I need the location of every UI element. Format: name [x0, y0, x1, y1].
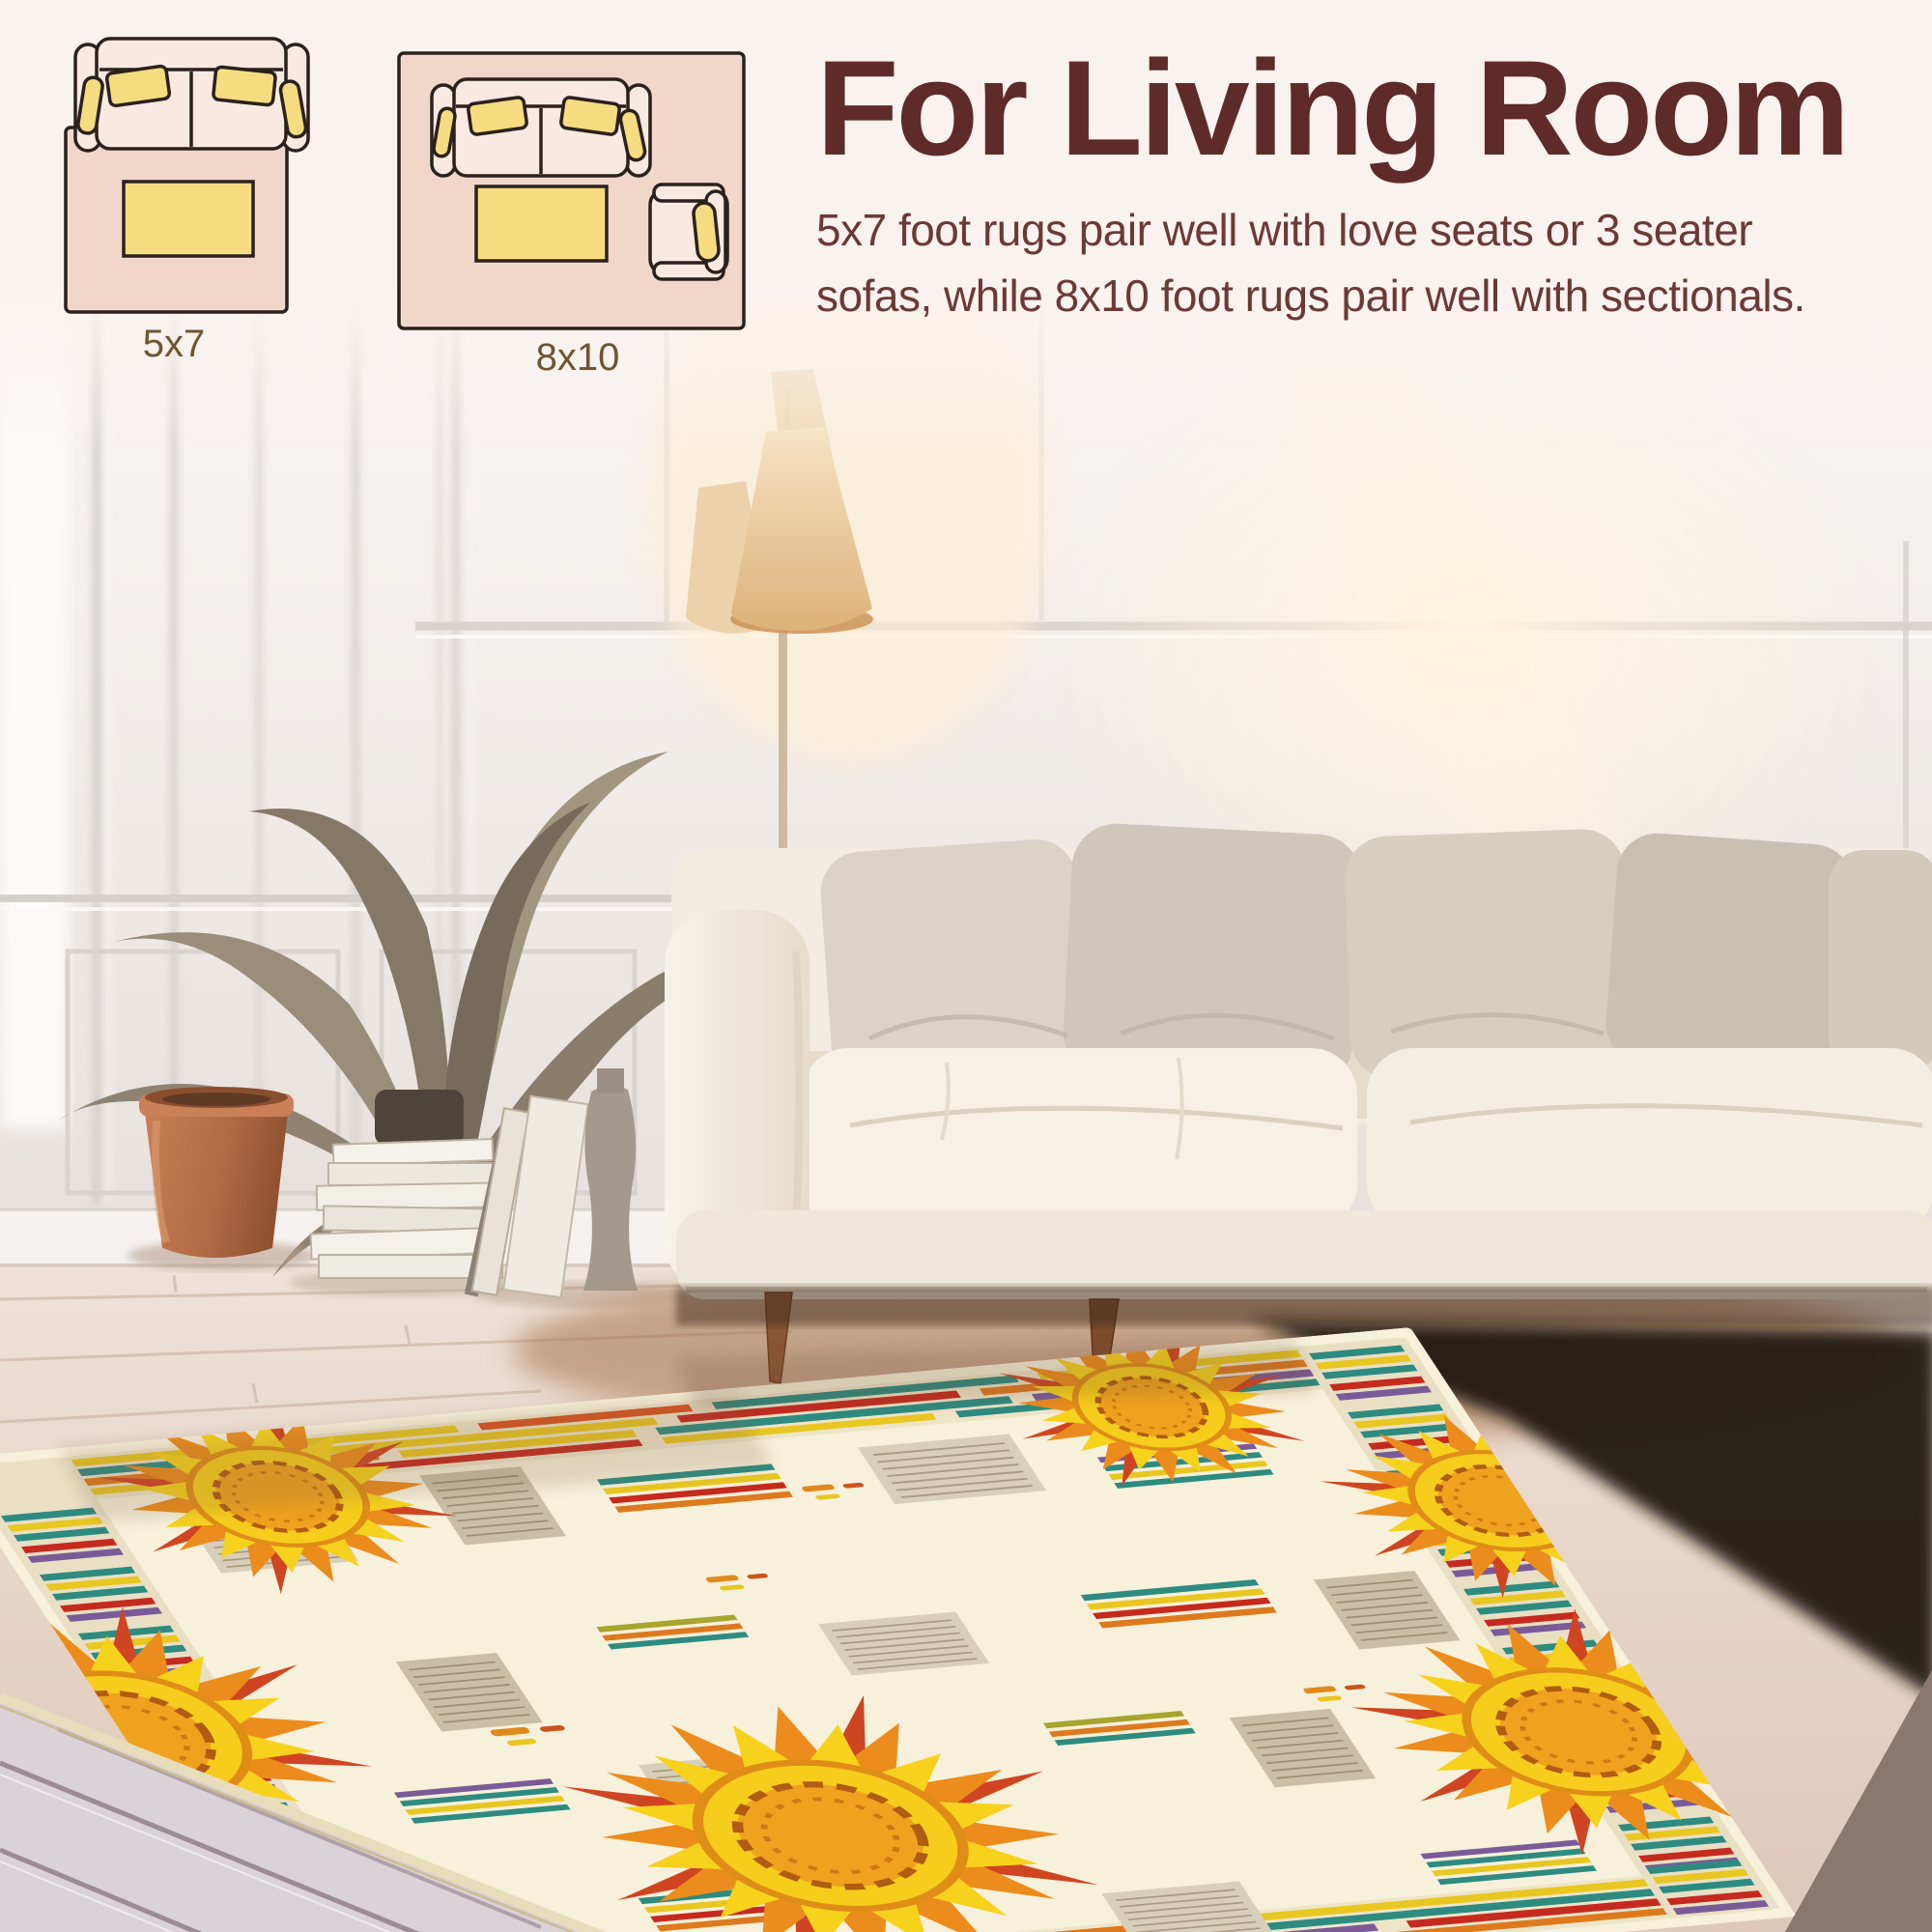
loveseat-top-view-icon — [75, 39, 308, 151]
armchair-top-view-icon — [650, 185, 727, 279]
rug-5x7 — [124, 182, 253, 256]
lamp-pole — [779, 618, 787, 869]
pillow — [560, 97, 620, 135]
page-subtitle: 5x7 foot rugs pair well with love seats … — [816, 197, 1805, 328]
size-label-8x10: 8x10 — [500, 336, 655, 380]
sofa-pillow — [1344, 828, 1633, 1081]
subtitle-line-1: 5x7 foot rugs pair well with love seats … — [816, 205, 1752, 255]
vase — [597, 1068, 624, 1094]
header-band: 5x7 8x10 For Living Room 5x7 foot rugs p… — [0, 0, 1932, 454]
seat-cushion — [1367, 1048, 1932, 1230]
diagram-5x7 — [66, 39, 308, 312]
page-title: For Living Room — [816, 37, 1847, 179]
diagram-8x10 — [399, 53, 744, 328]
seat-cushion — [802, 1048, 1357, 1230]
pillow — [693, 202, 720, 262]
rug-8x10 — [476, 186, 607, 261]
sculpture-object — [375, 1090, 464, 1146]
sofa-pillow — [1604, 831, 1856, 1079]
sofa-top-view-icon — [432, 79, 650, 176]
vase — [583, 1085, 638, 1291]
product-infographic: { "header": { "title": "For Living Room"… — [0, 0, 1932, 1932]
size-label-5x7: 5x7 — [97, 323, 251, 366]
pillow — [106, 66, 170, 106]
pillow — [468, 97, 527, 135]
sofa-base — [676, 1210, 1932, 1299]
sofa-pillow — [1829, 850, 1932, 1072]
subtitle-line-2: sofas, while 8x10 foot rugs pair well wi… — [816, 270, 1805, 321]
sofa-shadow — [676, 1287, 1932, 1325]
pillow — [213, 67, 275, 105]
